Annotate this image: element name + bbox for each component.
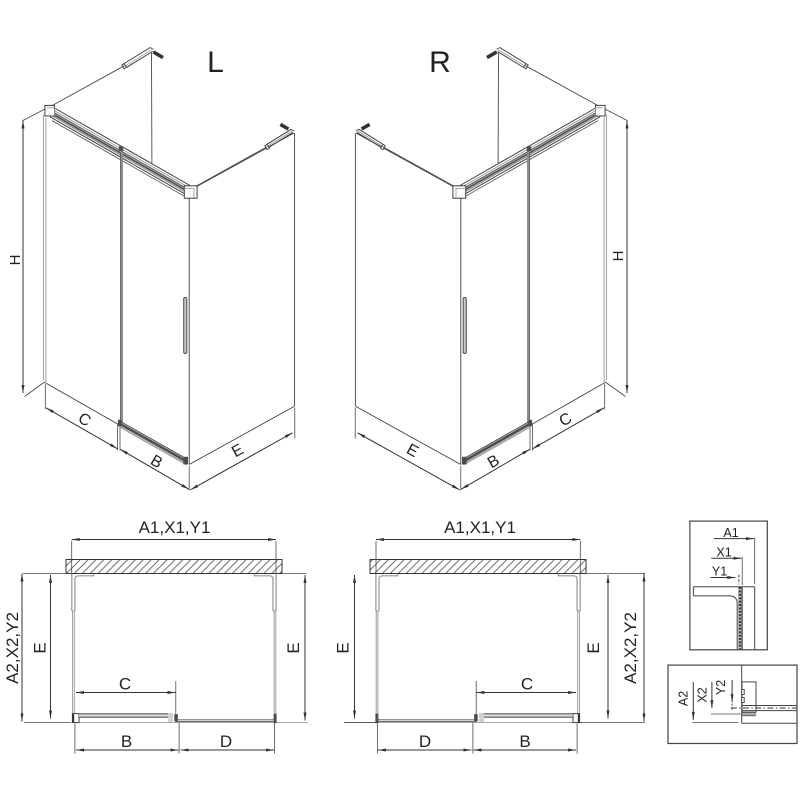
svg-text:A1: A1 [723, 526, 738, 540]
svg-text:A1,X1,Y1: A1,X1,Y1 [444, 518, 516, 537]
svg-text:H: H [7, 255, 24, 266]
svg-text:B: B [519, 732, 530, 751]
svg-text:E: E [334, 642, 353, 653]
svg-text:E: E [31, 642, 50, 653]
svg-text:Y1: Y1 [712, 565, 727, 579]
svg-text:A2,X2,Y2: A2,X2,Y2 [3, 612, 22, 684]
svg-text:A2: A2 [677, 691, 691, 706]
svg-text:B: B [121, 732, 132, 751]
svg-text:D: D [419, 732, 431, 751]
svg-text:X2: X2 [696, 687, 710, 702]
svg-text:A2,X2,Y2: A2,X2,Y2 [621, 612, 640, 684]
svg-text:E: E [584, 642, 603, 653]
svg-text:H: H [610, 251, 627, 262]
svg-text:D: D [220, 732, 232, 751]
svg-text:Y2: Y2 [714, 680, 728, 695]
svg-text:A1,X1,Y1: A1,X1,Y1 [139, 518, 211, 537]
svg-text:L: L [207, 46, 224, 79]
svg-text:C: C [119, 675, 131, 694]
svg-text:E: E [284, 642, 303, 653]
svg-text:C: C [521, 675, 533, 694]
svg-text:R: R [429, 46, 451, 79]
svg-text:X1: X1 [716, 546, 731, 560]
